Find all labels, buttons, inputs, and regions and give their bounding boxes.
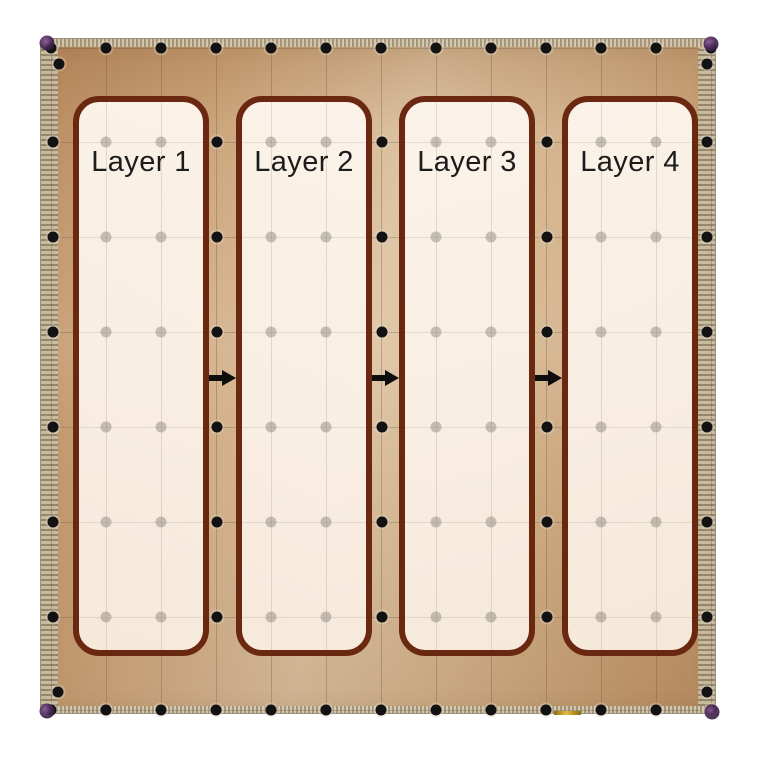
grid-contact-dot-faint (651, 137, 662, 148)
grid-contact-dot-faint (431, 517, 442, 528)
grid-contact-dot-faint (486, 137, 497, 148)
grid-contact-dot-faint (651, 517, 662, 528)
metal-grid-line-vertical (711, 47, 712, 708)
grid-contact-dot-faint (101, 327, 112, 338)
bond-pad-dot (266, 43, 277, 54)
grid-contact-dot-faint (101, 612, 112, 623)
grid-contact-dot-faint (266, 517, 277, 528)
grid-contact-dot-faint (486, 612, 497, 623)
grid-contact-dot-faint (101, 232, 112, 243)
metal-grid-line-horizontal (405, 142, 529, 143)
grid-contact-dot-faint (596, 517, 607, 528)
bond-pad-dot (702, 422, 713, 433)
grid-contact-dot (542, 612, 553, 623)
metal-grid-line-horizontal (242, 427, 366, 428)
layer-4-region: Layer 4 (562, 96, 698, 656)
corner-pad-dot (53, 687, 64, 698)
bond-pad-dot (266, 705, 277, 716)
grid-contact-dot (542, 517, 553, 528)
grid-contact-dot-faint (101, 137, 112, 148)
bond-pad-dot (431, 43, 442, 54)
bond-pad-dot (541, 43, 552, 54)
grid-contact-dot-faint (651, 327, 662, 338)
bond-pad-dot (702, 612, 713, 623)
grid-contact-dot-faint (156, 137, 167, 148)
grid-contact-dot (212, 612, 223, 623)
bond-pad-dot (541, 705, 552, 716)
grid-contact-dot-faint (596, 232, 607, 243)
grid-contact-dot-faint (321, 137, 332, 148)
layer-2-region: Layer 2 (236, 96, 372, 656)
metal-grid-line-vertical (491, 102, 492, 650)
metal-grid-line-horizontal (79, 617, 203, 618)
metal-grid-line-vertical (326, 102, 327, 650)
grid-contact-dot (542, 232, 553, 243)
die-corner-artifact (40, 36, 55, 51)
figure-annotated-chip-die: Layer 1 Layer 2 Layer 3 Layer 4 (0, 0, 766, 766)
metal-grid-line-horizontal (79, 522, 203, 523)
metal-grid-line-horizontal (79, 427, 203, 428)
bond-pad-dot (321, 43, 332, 54)
grid-contact-dot-faint (651, 422, 662, 433)
grid-contact-dot-faint (431, 422, 442, 433)
arrow-head (222, 370, 236, 386)
metal-grid-line-horizontal (79, 237, 203, 238)
layer-2-label: Layer 2 (242, 144, 366, 180)
grid-contact-dot-faint (431, 232, 442, 243)
corner-pad-dot (702, 59, 713, 70)
die-corner-artifact (704, 37, 719, 52)
grid-contact-dot (212, 422, 223, 433)
arrow-layer1-to-layer2-icon (209, 370, 236, 386)
grid-contact-dot-faint (486, 517, 497, 528)
arrow-head (385, 370, 399, 386)
corner-pad-dot (54, 59, 65, 70)
grid-contact-dot (542, 137, 553, 148)
bond-pad-dot (101, 705, 112, 716)
grid-contact-dot-faint (321, 327, 332, 338)
grid-contact-dot-faint (431, 327, 442, 338)
bond-pad-dot (486, 43, 497, 54)
grid-contact-dot-faint (321, 612, 332, 623)
bond-pad-dot (211, 43, 222, 54)
grid-contact-dot-faint (596, 612, 607, 623)
bond-pad-dot (101, 43, 112, 54)
grid-contact-dot (542, 327, 553, 338)
layer-4-label: Layer 4 (568, 144, 692, 180)
grid-contact-dot-faint (321, 422, 332, 433)
metal-grid-line-horizontal (405, 522, 529, 523)
grid-contact-dot-faint (266, 232, 277, 243)
arrow-shaft (372, 375, 386, 381)
grid-contact-dot-faint (266, 422, 277, 433)
metal-grid-line-horizontal (405, 427, 529, 428)
bond-pad-dot (702, 327, 713, 338)
metal-grid-line-horizontal (568, 617, 692, 618)
metal-grid-line-vertical (436, 102, 437, 650)
metal-grid-line-horizontal (79, 142, 203, 143)
metal-grid-line-horizontal (405, 237, 529, 238)
metal-grid-line-horizontal (405, 617, 529, 618)
bond-pad-dot (376, 705, 387, 716)
grid-contact-dot-faint (156, 517, 167, 528)
grid-contact-dot (212, 232, 223, 243)
grid-contact-dot (542, 422, 553, 433)
metal-grid-line-vertical (656, 102, 657, 650)
grid-contact-dot (377, 517, 388, 528)
bond-pad-dot (431, 705, 442, 716)
bond-pad-dot (596, 705, 607, 716)
grid-contact-dot-faint (431, 137, 442, 148)
bond-pad-dot (48, 517, 59, 528)
bond-pad-dot (702, 137, 713, 148)
bond-pad-dot (211, 705, 222, 716)
arrow-layer3-to-layer4-icon (535, 370, 562, 386)
die-corner-artifact (705, 705, 720, 720)
grid-contact-dot-faint (266, 612, 277, 623)
grid-contact-dot-faint (431, 612, 442, 623)
grid-contact-dot (377, 137, 388, 148)
bond-pad-dot (376, 43, 387, 54)
grid-contact-dot-faint (596, 137, 607, 148)
grid-contact-dot-faint (156, 327, 167, 338)
metal-grid-line-horizontal (568, 237, 692, 238)
metal-grid-line-horizontal (568, 332, 692, 333)
grid-contact-dot-faint (321, 517, 332, 528)
bond-pad-dot (48, 612, 59, 623)
grid-contact-dot (377, 232, 388, 243)
grid-contact-dot (212, 517, 223, 528)
grid-contact-dot-faint (266, 137, 277, 148)
grid-contact-dot-faint (156, 422, 167, 433)
bond-pad-dot (156, 705, 167, 716)
metal-grid-line-horizontal (568, 522, 692, 523)
metal-grid-line-vertical (161, 102, 162, 650)
arrow-layer2-to-layer3-icon (372, 370, 399, 386)
grid-contact-dot-faint (486, 327, 497, 338)
metal-grid-line-vertical (601, 102, 602, 650)
metal-grid-line-vertical (271, 102, 272, 650)
grid-contact-dot-faint (266, 327, 277, 338)
bond-pad-dot (702, 517, 713, 528)
bond-pad-dot (651, 705, 662, 716)
bond-pad-dot (48, 137, 59, 148)
bond-pad-dot (48, 422, 59, 433)
die-corner-artifact (40, 704, 55, 719)
metal-grid-line-horizontal (242, 237, 366, 238)
metal-grid-line-horizontal (242, 617, 366, 618)
grid-contact-dot (377, 422, 388, 433)
bond-pad-dot (651, 43, 662, 54)
arrow-shaft (209, 375, 223, 381)
grid-contact-dot-faint (321, 232, 332, 243)
bond-pad-dot (486, 705, 497, 716)
chip-die-photo: Layer 1 Layer 2 Layer 3 Layer 4 (40, 38, 716, 714)
layer-1-label: Layer 1 (79, 144, 203, 180)
bond-pad-dot (321, 705, 332, 716)
metal-grid-line-horizontal (242, 332, 366, 333)
grid-contact-dot-faint (101, 517, 112, 528)
metal-grid-line-vertical (106, 102, 107, 650)
grid-contact-dot-faint (486, 422, 497, 433)
bond-pad-dot (48, 232, 59, 243)
arrow-head (548, 370, 562, 386)
metal-grid-line-horizontal (242, 142, 366, 143)
grid-contact-dot (212, 327, 223, 338)
grid-contact-dot-faint (486, 232, 497, 243)
metal-grid-line-horizontal (405, 332, 529, 333)
metal-grid-line-horizontal (242, 522, 366, 523)
grid-contact-dot-faint (651, 232, 662, 243)
bond-pad-dot (48, 327, 59, 338)
grid-contact-dot-faint (101, 422, 112, 433)
layer-3-label: Layer 3 (405, 144, 529, 180)
bond-pad-dot (596, 43, 607, 54)
bond-pad-dot (702, 232, 713, 243)
grid-contact-dot-faint (651, 612, 662, 623)
layer-1-region: Layer 1 (73, 96, 209, 656)
grid-contact-dot-faint (596, 327, 607, 338)
metal-grid-line-horizontal (568, 427, 692, 428)
grid-contact-dot-faint (156, 232, 167, 243)
layer-3-region: Layer 3 (399, 96, 535, 656)
bond-pad-dot (156, 43, 167, 54)
grid-contact-dot-faint (596, 422, 607, 433)
grid-contact-dot (377, 327, 388, 338)
corner-pad-dot (702, 687, 713, 698)
metal-grid-line-horizontal (79, 332, 203, 333)
die-gold-marking (554, 711, 581, 715)
grid-contact-dot (377, 612, 388, 623)
metal-grid-line-horizontal (568, 142, 692, 143)
arrow-shaft (535, 375, 549, 381)
grid-contact-dot-faint (156, 612, 167, 623)
grid-contact-dot (212, 137, 223, 148)
